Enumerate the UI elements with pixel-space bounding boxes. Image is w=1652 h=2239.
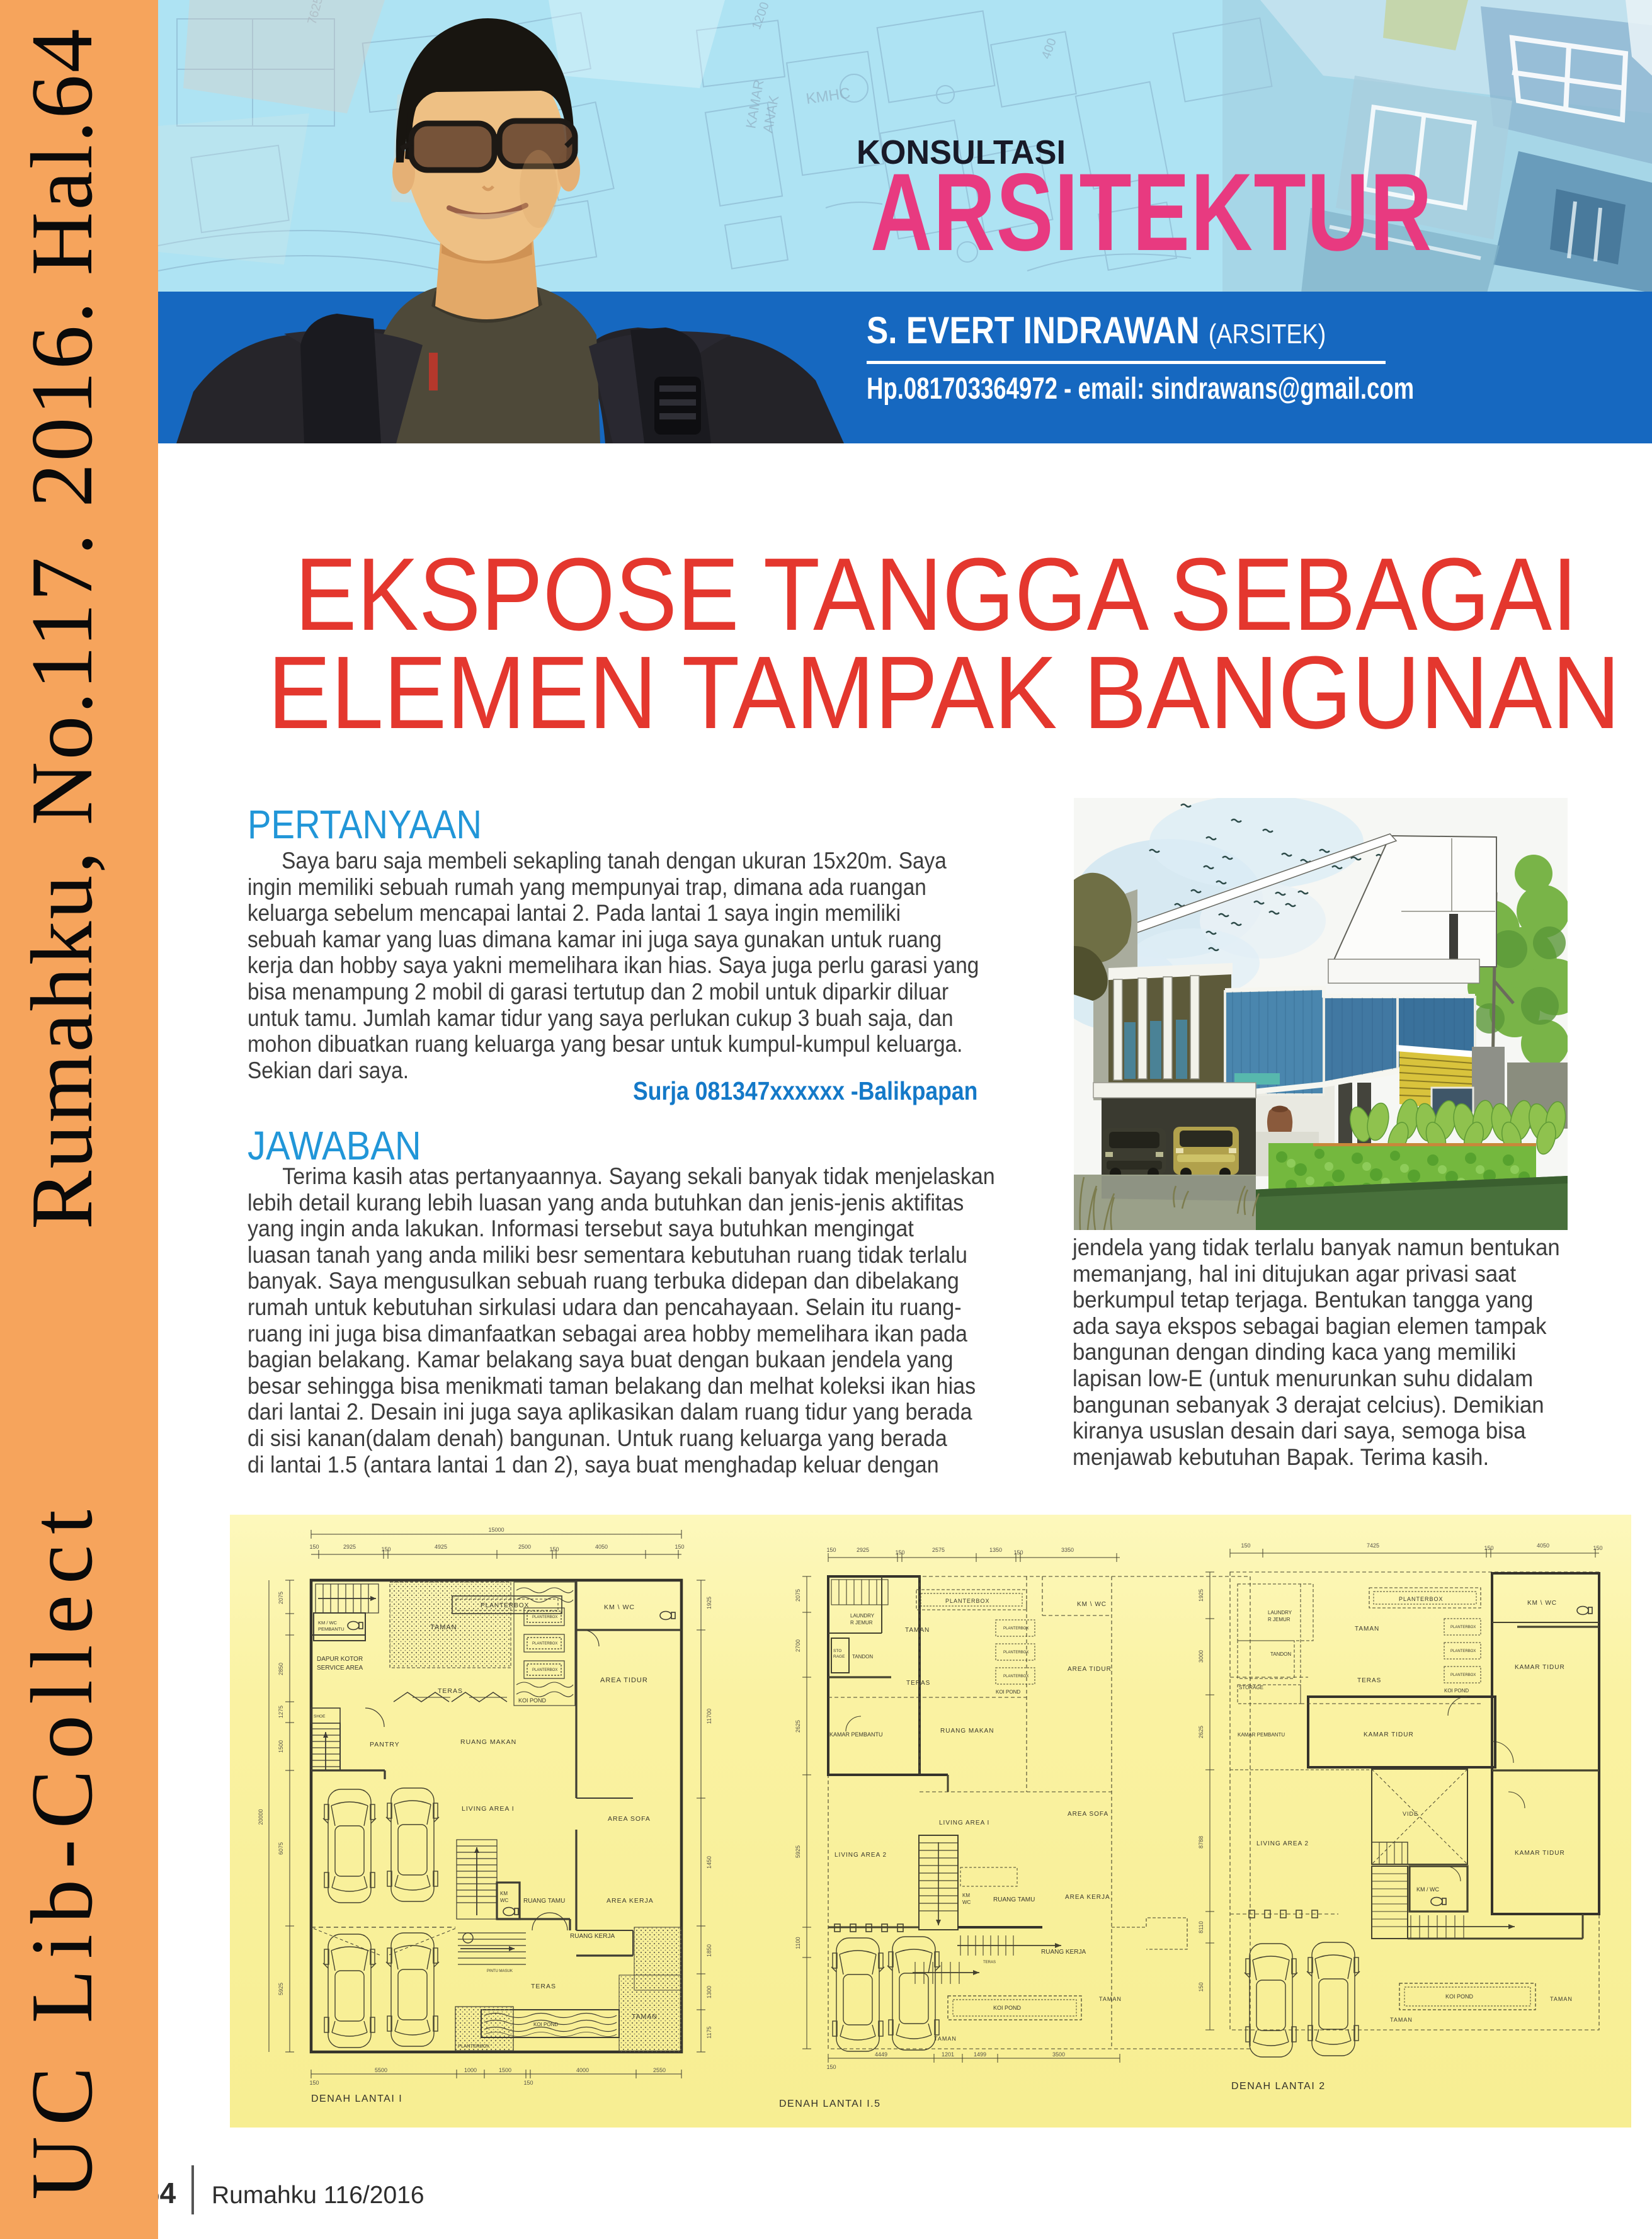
svg-text:4050: 4050 [1537, 1542, 1549, 1549]
svg-text:RUANG TAMU: RUANG TAMU [523, 1898, 565, 1905]
svg-text:RAGE: RAGE [833, 1655, 845, 1659]
svg-text:PINTU MASUK: PINTU MASUK [487, 1969, 513, 1973]
svg-text:TAMAN: TAMAN [632, 2013, 658, 2020]
svg-text:SERVICE AREA: SERVICE AREA [317, 1665, 363, 1672]
svg-text:KM: KM [500, 1891, 508, 1896]
svg-text:KAMAR PEMBANTU: KAMAR PEMBANTU [829, 1731, 883, 1738]
svg-text:PANTRY: PANTRY [370, 1741, 400, 1748]
svg-text:RUANG MAKAN: RUANG MAKAN [460, 1738, 516, 1746]
svg-text:KM / WC: KM / WC [318, 1620, 338, 1626]
svg-text:KM / WC: KM / WC [1416, 1886, 1439, 1893]
svg-text:1925: 1925 [1198, 1589, 1204, 1602]
svg-text:KAMAR PEMBANTU: KAMAR PEMBANTU [1238, 1732, 1285, 1738]
svg-text:2700: 2700 [795, 1639, 801, 1652]
svg-text:WC: WC [500, 1898, 509, 1903]
svg-text:1500: 1500 [499, 2067, 511, 2073]
svg-text:PLANTERBOX: PLANTERBOX [1450, 1649, 1476, 1653]
svg-text:DENAH LANTAI 2: DENAH LANTAI 2 [1231, 2081, 1326, 2092]
svg-text:150: 150 [1484, 1545, 1493, 1551]
svg-text:PLANTERBOX: PLANTERBOX [945, 1598, 990, 1604]
svg-text:TERAS: TERAS [531, 1983, 556, 1990]
svg-text:STORAGE: STORAGE [1239, 1685, 1263, 1690]
svg-text:TAMAN: TAMAN [1099, 1996, 1122, 2002]
svg-text:1500: 1500 [278, 1740, 284, 1753]
svg-text:TANDON: TANDON [852, 1654, 873, 1660]
svg-text:1350: 1350 [989, 1547, 1002, 1553]
svg-text:150: 150 [826, 2064, 836, 2070]
svg-text:R JEMUR: R JEMUR [850, 1620, 873, 1626]
svg-text:VIDE: VIDE [1403, 1811, 1418, 1817]
svg-text:5925: 5925 [278, 1983, 284, 1995]
svg-text:TANDON: TANDON [1270, 1651, 1291, 1657]
svg-text:AREA TIDUR: AREA TIDUR [1068, 1666, 1112, 1673]
svg-text:PLANTERBOX: PLANTERBOX [458, 2043, 489, 2049]
svg-text:AREA KERJA: AREA KERJA [607, 1897, 654, 1905]
svg-text:PLANTERBOX: PLANTERBOX [481, 1602, 529, 1609]
svg-text:WC: WC [962, 1900, 971, 1905]
svg-text:KOI POND: KOI POND [518, 1697, 547, 1704]
svg-text:SHOE: SHOE [314, 1714, 326, 1719]
svg-text:TERAS: TERAS [983, 1961, 996, 1964]
svg-text:2850: 2850 [278, 1663, 284, 1675]
svg-text:PLANTERBOX: PLANTERBOX [1003, 1627, 1028, 1631]
svg-text:AREA TIDUR: AREA TIDUR [600, 1677, 648, 1684]
svg-text:PLANTERBOX: PLANTERBOX [532, 1668, 557, 1672]
svg-text:150: 150 [1241, 1542, 1250, 1549]
svg-text:PLANTERBOX: PLANTERBOX [1399, 1596, 1444, 1602]
svg-text:4000: 4000 [576, 2067, 589, 2073]
svg-text:LIVING AREA 2: LIVING AREA 2 [1256, 1840, 1309, 1847]
svg-text:8788: 8788 [1198, 1836, 1204, 1849]
svg-text:150: 150 [1593, 1545, 1602, 1551]
svg-text:4449: 4449 [875, 2051, 887, 2058]
svg-text:1925: 1925 [706, 1597, 712, 1609]
svg-text:1000: 1000 [464, 2067, 477, 2073]
svg-text:R JEMUR: R JEMUR [1268, 1617, 1290, 1622]
svg-text:2925: 2925 [857, 1547, 869, 1553]
svg-text:LIVING AREA I: LIVING AREA I [462, 1805, 515, 1813]
svg-text:3000: 3000 [1198, 1650, 1204, 1663]
svg-text:DAPUR KOTOR: DAPUR KOTOR [317, 1656, 363, 1663]
svg-text:1175: 1175 [706, 2026, 712, 2038]
svg-text:TAMAN: TAMAN [1550, 1996, 1573, 2002]
svg-text:2075: 2075 [795, 1589, 801, 1602]
svg-text:KM: KM [962, 1893, 970, 1898]
svg-text:PLANTERBOX: PLANTERBOX [1003, 1651, 1028, 1655]
svg-text:KOI POND: KOI POND [1445, 1993, 1474, 2000]
svg-text:1100: 1100 [795, 1937, 801, 1949]
svg-text:2575: 2575 [932, 1547, 945, 1553]
svg-text:150: 150 [895, 1549, 904, 1556]
svg-text:KAMAR TIDUR: KAMAR TIDUR [1364, 1731, 1414, 1738]
svg-text:DENAH LANTAI I: DENAH LANTAI I [311, 2094, 402, 2104]
svg-text:150: 150 [826, 1547, 836, 1553]
svg-text:RUANG TAMU: RUANG TAMU [993, 1896, 1035, 1903]
svg-text:STO: STO [833, 1649, 841, 1653]
svg-text:150: 150 [549, 1546, 559, 1552]
svg-text:TAMAN: TAMAN [1390, 2017, 1413, 2023]
svg-text:1499: 1499 [974, 2051, 986, 2058]
svg-text:15000: 15000 [488, 1527, 504, 1533]
svg-text:TERAS: TERAS [1357, 1677, 1381, 1684]
svg-text:6075: 6075 [278, 1842, 284, 1855]
svg-text:AREA SOFA: AREA SOFA [1068, 1811, 1108, 1818]
svg-text:KM \ WC: KM \ WC [604, 1604, 635, 1611]
svg-text:150: 150 [675, 1544, 684, 1550]
svg-text:2625: 2625 [795, 1720, 801, 1733]
svg-text:2625: 2625 [1198, 1726, 1204, 1738]
svg-text:150: 150 [1198, 1982, 1204, 1991]
svg-text:150: 150 [309, 1544, 319, 1550]
svg-text:7425: 7425 [1367, 1542, 1379, 1549]
svg-text:KOI POND: KOI POND [533, 2022, 558, 2027]
svg-text:4925: 4925 [435, 1544, 447, 1550]
svg-text:11700: 11700 [706, 1709, 712, 1724]
svg-text:KOI POND: KOI POND [1444, 1688, 1469, 1694]
svg-text:RUANG KERJA: RUANG KERJA [1041, 1949, 1086, 1956]
svg-text:PLANTERBOX: PLANTERBOX [1450, 1673, 1476, 1677]
svg-text:150: 150 [523, 2080, 533, 2086]
svg-text:5925: 5925 [795, 1845, 801, 1858]
svg-text:KAMAR TIDUR: KAMAR TIDUR [1515, 1664, 1565, 1671]
svg-text:AREA SOFA: AREA SOFA [608, 1815, 651, 1823]
svg-text:TAMAN: TAMAN [905, 1627, 930, 1634]
svg-text:2075: 2075 [278, 1592, 284, 1604]
svg-text:8110: 8110 [1198, 1921, 1204, 1933]
svg-text:LIVING AREA I: LIVING AREA I [939, 1820, 989, 1826]
svg-text:TERAS: TERAS [438, 1687, 463, 1695]
svg-text:KAMAR TIDUR: KAMAR TIDUR [1515, 1850, 1565, 1857]
svg-text:PLANTERBOX: PLANTERBOX [1003, 1675, 1028, 1678]
svg-text:LIVING AREA 2: LIVING AREA 2 [835, 1852, 887, 1859]
svg-text:LAUNDRY: LAUNDRY [850, 1613, 875, 1619]
svg-text:5500: 5500 [375, 2067, 387, 2073]
svg-text:KOI POND: KOI POND [996, 1689, 1020, 1695]
svg-text:150: 150 [1013, 1549, 1023, 1556]
svg-text:150: 150 [381, 1546, 390, 1552]
svg-text:1450: 1450 [706, 1856, 712, 1869]
svg-text:PLANTERBOX: PLANTERBOX [1450, 1626, 1476, 1629]
svg-text:1850: 1850 [706, 1944, 712, 1957]
svg-text:PLANTERBOX: PLANTERBOX [532, 1615, 557, 1619]
svg-text:TERAS: TERAS [906, 1680, 930, 1687]
svg-text:3500: 3500 [1052, 2051, 1065, 2058]
svg-text:TAMAN: TAMAN [430, 1624, 457, 1631]
svg-text:1300: 1300 [706, 1986, 712, 1998]
svg-text:2550: 2550 [653, 2067, 666, 2073]
svg-text:1201: 1201 [942, 2051, 954, 2058]
svg-text:2925: 2925 [343, 1544, 356, 1550]
svg-text:3350: 3350 [1061, 1547, 1074, 1553]
svg-text:400: 400 [1039, 37, 1059, 61]
svg-text:LAUNDRY: LAUNDRY [1268, 1610, 1292, 1615]
svg-text:2500: 2500 [518, 1544, 531, 1550]
svg-text:TAMAN: TAMAN [1355, 1626, 1379, 1632]
svg-text:RUANG KERJA: RUANG KERJA [570, 1933, 615, 1940]
svg-text:1275: 1275 [278, 1706, 284, 1718]
svg-text:KOI POND: KOI POND [993, 2005, 1022, 2011]
svg-text:PLANTERBOX: PLANTERBOX [532, 1642, 557, 1646]
svg-text:RUANG MAKAN: RUANG MAKAN [940, 1728, 994, 1735]
svg-text:150: 150 [309, 2080, 319, 2086]
svg-text:DENAH LANTAI I.5: DENAH LANTAI I.5 [779, 2099, 881, 2109]
svg-text:KM \ WC: KM \ WC [1527, 1600, 1557, 1607]
svg-text:TAMAN: TAMAN [934, 2036, 957, 2042]
svg-text:20000: 20000 [258, 1809, 264, 1825]
svg-text:AREA KERJA: AREA KERJA [1065, 1894, 1110, 1901]
svg-text:PEMBANTU: PEMBANTU [318, 1626, 345, 1632]
svg-text:KM \ WC: KM \ WC [1077, 1601, 1107, 1608]
svg-text:4050: 4050 [595, 1544, 608, 1550]
